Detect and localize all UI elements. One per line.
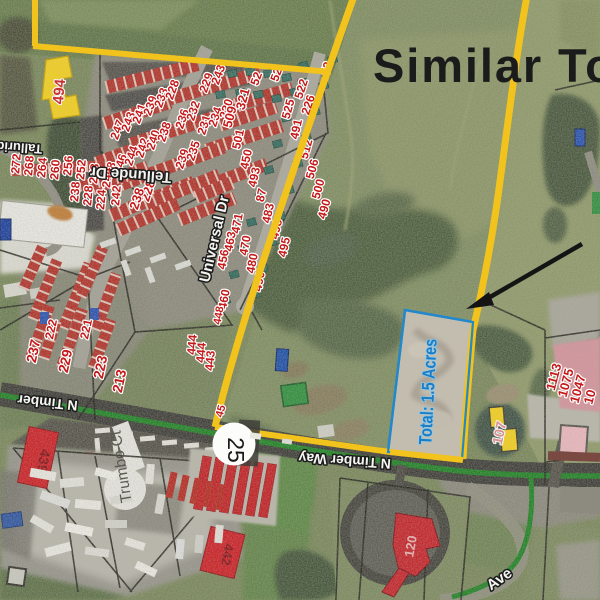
svg-text:Similar To: Similar To: [373, 39, 600, 92]
svg-text:224: 224: [93, 189, 109, 210]
svg-text:443: 443: [202, 350, 218, 371]
svg-text:238: 238: [67, 181, 83, 202]
svg-text:242: 242: [108, 185, 124, 206]
svg-text:25: 25: [223, 437, 249, 463]
svg-text:228: 228: [80, 185, 96, 206]
